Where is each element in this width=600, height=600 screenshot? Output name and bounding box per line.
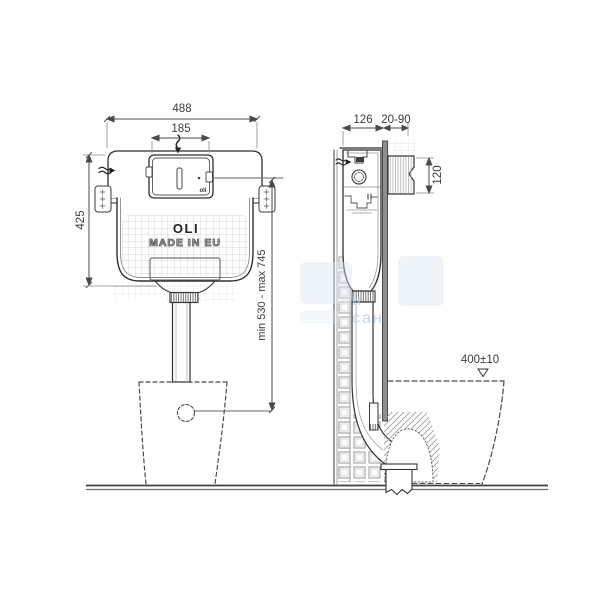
inlet-fitting (356, 157, 364, 162)
wall-section-bar (383, 141, 388, 421)
drain-outlet-box (381, 464, 417, 495)
dim-label-400: 400±10 (452, 353, 508, 367)
flush-rod-slot (177, 168, 182, 189)
dim-label-min-max: min 530 - max 745 (255, 240, 269, 350)
plate-logo-small: oli (197, 184, 209, 198)
plate-dot (198, 177, 201, 180)
floor-line (86, 486, 548, 490)
dim-126 (343, 125, 383, 146)
diagram-canvas: 488 185 425 min 530 - max 745 126 20-90 … (0, 0, 600, 600)
toilet-bowl-side-outline (482, 381, 504, 484)
mounting-bracket-right (259, 186, 275, 212)
made-in-eu-label: MADE IN EU (129, 236, 241, 250)
dim-label-425: 425 (74, 200, 88, 240)
plate-clip-left (146, 167, 152, 177)
dim-label-185: 185 (156, 122, 206, 136)
dim-label-488: 488 (157, 102, 207, 116)
plate-clip-right (206, 172, 213, 182)
level-triangle-marker (478, 369, 488, 377)
mounting-bracket-left (95, 186, 111, 212)
technical-drawing (0, 0, 600, 600)
dim-label-20-90: 20-90 (372, 113, 420, 127)
toilet-bowl-front-outline (139, 382, 272, 484)
bowl-outlet-circle (178, 405, 195, 422)
flush-sleeve (388, 156, 414, 194)
dim-label-120: 120 (431, 155, 445, 195)
tank-side (343, 150, 381, 291)
brand-logo: OLI (156, 222, 216, 236)
dim-185 (152, 135, 209, 153)
side-view (334, 141, 504, 484)
